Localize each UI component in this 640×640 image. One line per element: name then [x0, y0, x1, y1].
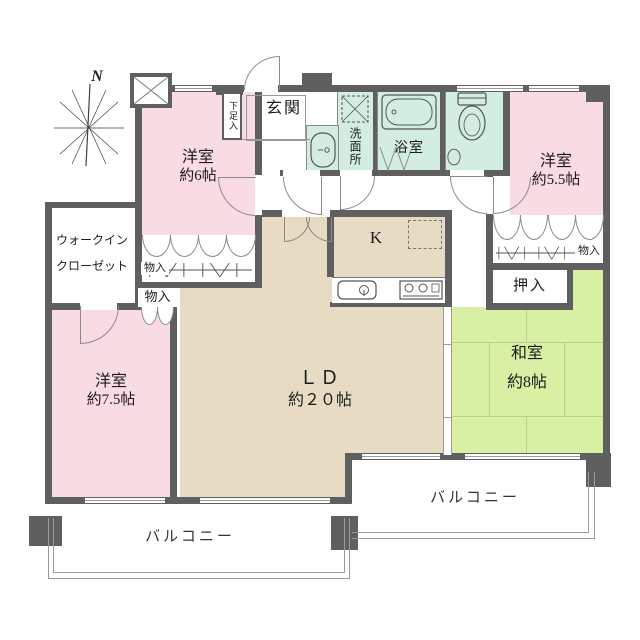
wall-kitchen-top [350, 210, 452, 217]
wall-bath-toilet [440, 85, 445, 172]
opening-room55-door [486, 177, 493, 214]
wall-ld-east [445, 210, 452, 307]
room55-label: 洋室約5.5帖 [506, 152, 606, 189]
toilet-door-arc [450, 176, 487, 214]
room75-label: 洋室約7.5帖 [61, 372, 161, 409]
window-south-1 [85, 498, 165, 503]
fusuma-partition [443, 307, 452, 455]
wall-closet55-bottom [493, 263, 610, 270]
bath-label: 浴室 [382, 141, 436, 158]
oshiire-label: 押入 [493, 277, 567, 295]
wall-oshiire-bottom [493, 303, 573, 310]
wall-right [603, 88, 610, 460]
wall-corner-ne [586, 90, 610, 102]
ld-label: ＬＤ 約２０帖 [255, 368, 385, 410]
window-north-3 [529, 86, 579, 91]
storage-a-label: 物入 [141, 262, 169, 275]
genkan-label: 玄関 [254, 99, 314, 118]
hanger-pipe-icon [496, 243, 576, 263]
tatami-label: 和室約8帖 [477, 340, 577, 398]
window-north-1 [175, 86, 212, 91]
entrance-door-arc [244, 56, 280, 90]
shoe-cabinet-label: 下足入 [225, 94, 238, 138]
window-north-2 [457, 86, 523, 91]
room-tatami-notch [573, 270, 603, 307]
kitchen-label: K [365, 228, 387, 248]
washing-machine-icon [341, 95, 369, 123]
opening-hall-door [283, 170, 320, 176]
washroom-door-arc [340, 176, 375, 210]
wic-label: ウォークインクローゼット [50, 227, 134, 280]
window-south-4 [465, 454, 580, 459]
floor-plan: N 洋室約6帖 洋室約5.5帖 洋室約7.5帖 和室約8帖 ＬＤ 約２０帖 K … [0, 0, 640, 640]
tatami-line [526, 416, 527, 455]
kitchen-sink-icon [337, 280, 377, 300]
window-south-3 [362, 454, 440, 459]
tatami-line [452, 416, 603, 417]
wall-duct-bump [302, 73, 332, 87]
tatami-line [526, 307, 527, 343]
stove-icon [399, 280, 443, 300]
room6-label: 洋室約6帖 [148, 148, 248, 185]
toilet-handwash-icon [447, 148, 461, 166]
fridge-space [408, 220, 442, 249]
wall-oshiire-right [567, 270, 573, 307]
wall-wash-bath [373, 88, 377, 172]
balcony-east-label: バルコニー [405, 489, 545, 507]
bathtub-icon [381, 94, 437, 130]
storage-b-label: 物入 [138, 289, 177, 305]
toilet-icon [452, 92, 492, 146]
washroom-label: 洗面所 [347, 121, 362, 171]
storage-c-label: 物入 [575, 245, 603, 258]
window-south-2 [200, 498, 330, 503]
north-label: N [86, 68, 108, 86]
wall-wic-top [45, 202, 140, 208]
washbasin-icon [310, 132, 336, 168]
genkan-step-line [242, 139, 310, 140]
opening-room6-door [255, 175, 262, 215]
balcony-south-label: バルコニー [120, 528, 260, 546]
